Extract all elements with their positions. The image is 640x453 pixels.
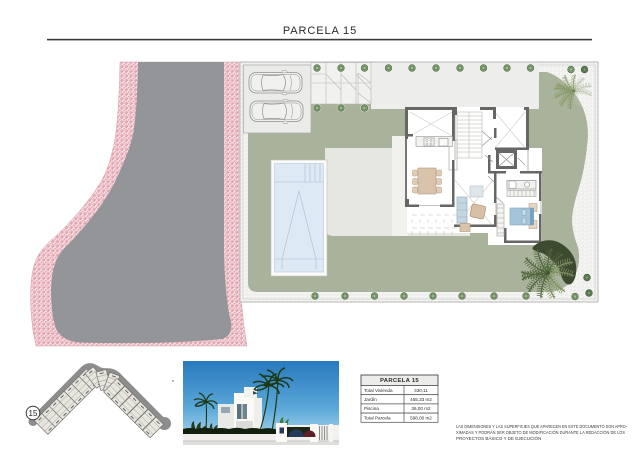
- svg-text:PROYECTOS BÁSICO Y DE EJECUCIÓ: PROYECTOS BÁSICO Y DE EJECUCIÓN: [456, 435, 541, 441]
- svg-text:598,00 m2: 598,00 m2: [410, 415, 432, 420]
- svg-text:455,33 m2: 455,33 m2: [410, 397, 432, 402]
- svg-text:XIMADAS Y PODRÁN SER OBJETO DE: XIMADAS Y PODRÁN SER OBJETO DE MODIFICAC…: [456, 429, 625, 435]
- svg-text:LAS DIMENSIONES Y LAS SUPERFIC: LAS DIMENSIONES Y LAS SUPERFICIES QUE AP…: [456, 424, 627, 429]
- svg-text:15: 15: [29, 409, 38, 418]
- svg-text:Total Parcela: Total Parcela: [364, 415, 391, 420]
- svg-text:Total Vivienda: Total Vivienda: [364, 388, 393, 393]
- svg-text:PARCELA 15: PARCELA 15: [283, 25, 357, 37]
- svg-text:330,11: 330,11: [414, 388, 428, 393]
- svg-text:Piscina: Piscina: [364, 406, 379, 411]
- svg-text:PARCELA 15: PARCELA 15: [380, 378, 419, 384]
- svg-text:36,00 m2: 36,00 m2: [411, 406, 431, 411]
- svg-text:Jardín: Jardín: [364, 397, 377, 402]
